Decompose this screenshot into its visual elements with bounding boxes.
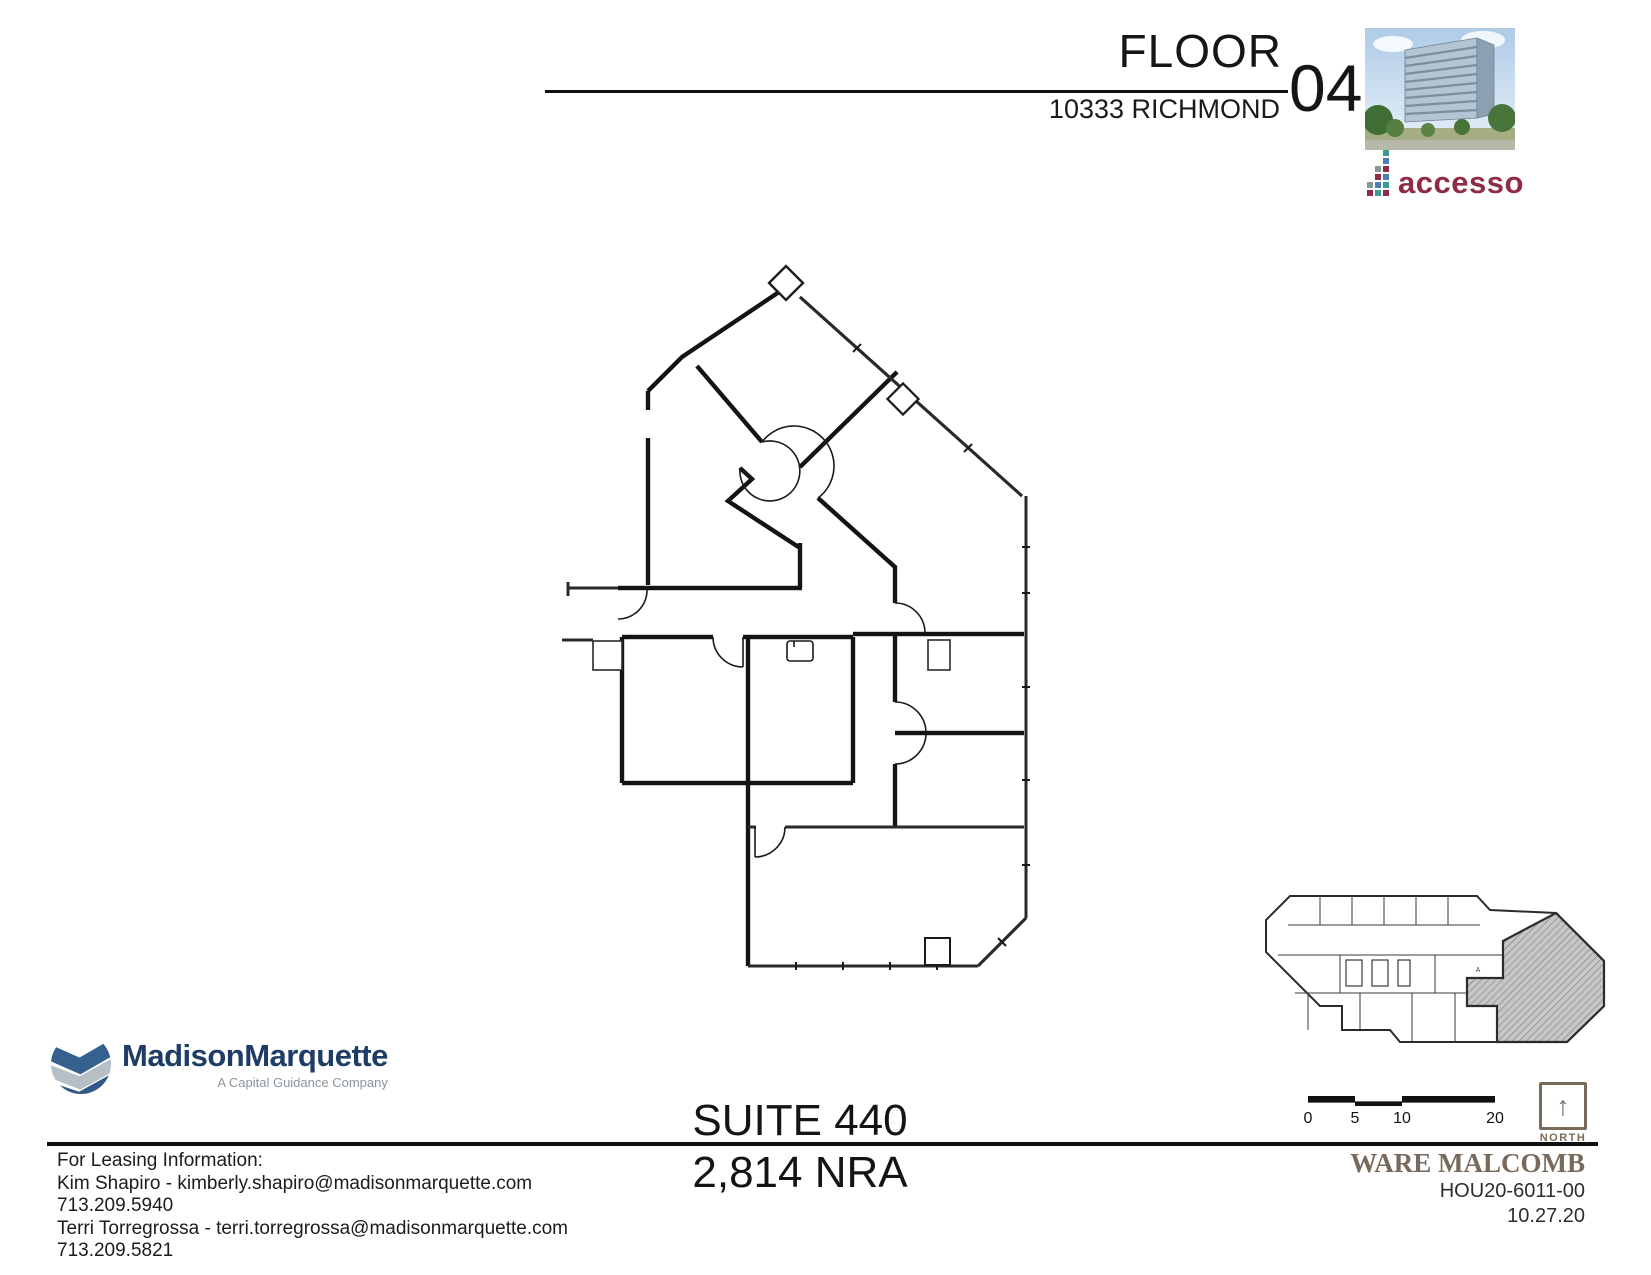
header-rule-line — [545, 90, 1288, 93]
madison-marquette-globe-icon — [50, 1032, 112, 1096]
leasing-phone: 713.209.5940 — [57, 1195, 568, 1218]
key-plan: A — [1258, 878, 1613, 1053]
key-plan-drawing: A — [1258, 878, 1613, 1053]
leasing-phone: 713.209.5821 — [57, 1240, 568, 1263]
suite-title: SUITE 440 — [560, 1096, 1040, 1146]
building-photo — [1365, 28, 1515, 150]
floor-number: 04 — [1289, 50, 1362, 126]
accesso-logo: accesso — [1366, 150, 1524, 200]
floor-plan-drawing — [540, 235, 1060, 980]
building-address: 10333 RICHMOND — [1030, 94, 1280, 125]
window-box-left — [593, 641, 622, 670]
scale-label-0: 0 — [1304, 1110, 1313, 1127]
suite-area: 2,814 NRA — [560, 1148, 1040, 1198]
sink-fixture — [787, 641, 813, 661]
north-arrow-icon: ↑ — [1556, 1093, 1570, 1120]
scale-bar: 0 5 10 20 — [1296, 1088, 1511, 1130]
scale-label-20: 20 — [1486, 1110, 1504, 1127]
project-number: HOU20-6011-00 — [1180, 1178, 1585, 1204]
floor-plan-sheet: FLOOR 04 10333 RICHMOND — [0, 0, 1651, 1275]
madison-wordmark: MadisonMarquette — [122, 1038, 388, 1074]
keyplan-room-label: A — [1476, 967, 1481, 974]
suite-floor-plan — [540, 235, 1060, 980]
column-bottom — [925, 938, 950, 965]
office-tower-photo — [1365, 28, 1515, 150]
leasing-heading: For Leasing Information: — [57, 1150, 568, 1173]
scale-label-5: 5 — [1351, 1110, 1360, 1127]
north-box: ↑ — [1539, 1082, 1587, 1130]
scale-label-10: 10 — [1393, 1110, 1411, 1127]
madison-tagline: A Capital Guidance Company — [122, 1075, 388, 1090]
scale-bar-drawing: 0 5 10 20 — [1296, 1088, 1511, 1130]
accesso-wordmark: accesso — [1398, 167, 1524, 200]
leasing-contact-line: Kim Shapiro - kimberly.shapiro@madisonma… — [57, 1173, 568, 1196]
madison-marquette-logo: MadisonMarquette A Capital Guidance Comp… — [50, 1032, 388, 1096]
architect-block: WARE MALCOMB HOU20-6011-00 10.27.20 — [1180, 1148, 1585, 1229]
leasing-contact-line: Terri Torregrossa - terri.torregrossa@ma… — [57, 1218, 568, 1241]
accesso-dot-matrix-icon — [1366, 150, 1392, 200]
leasing-info: For Leasing Information: Kim Shapiro - k… — [57, 1150, 568, 1263]
drawing-date: 10.27.20 — [1180, 1204, 1585, 1229]
mullion-square-mid — [887, 383, 918, 414]
north-indicator: ↑ NORTH — [1538, 1082, 1588, 1144]
window-box-right — [928, 640, 950, 670]
ware-malcomb-wordmark: WARE MALCOMB — [1180, 1148, 1585, 1178]
page-title: FLOOR — [1030, 24, 1282, 78]
